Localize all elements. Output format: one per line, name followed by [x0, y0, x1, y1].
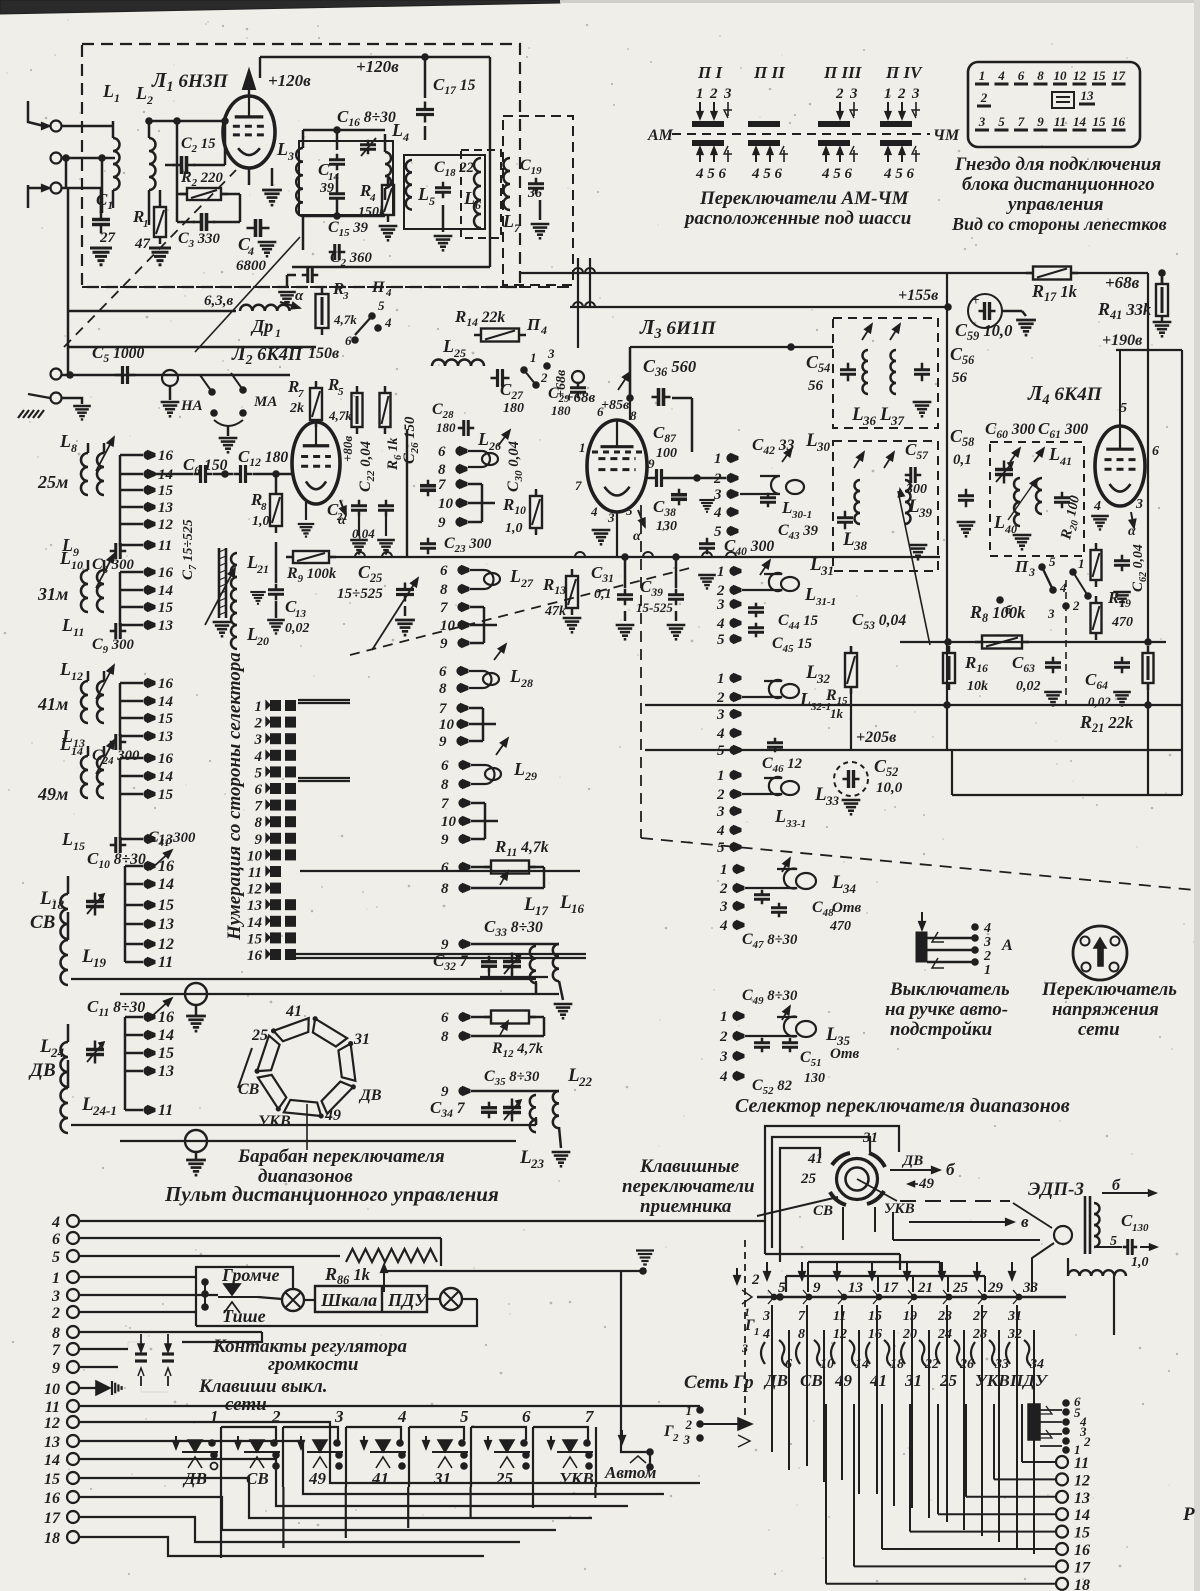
- svg-text:АМ: АМ: [647, 127, 674, 144]
- svg-text:4: 4: [385, 287, 392, 299]
- svg-text:Тише: Тише: [222, 1306, 266, 1326]
- svg-text:14: 14: [158, 583, 174, 599]
- svg-text:17: 17: [535, 903, 549, 918]
- svg-text:L: L: [59, 659, 71, 679]
- svg-text:11: 11: [45, 1399, 60, 1416]
- svg-text:2: 2: [685, 1417, 693, 1432]
- svg-text:13: 13: [158, 1063, 174, 1080]
- svg-text:+85в: +85в: [601, 398, 630, 413]
- svg-text:C16 8÷30: C16 8÷30: [337, 107, 396, 129]
- svg-text:3: 3: [1047, 606, 1055, 621]
- svg-text:300: 300: [905, 482, 927, 497]
- svg-text:4: 4: [402, 130, 409, 144]
- svg-text:4: 4: [716, 616, 725, 632]
- svg-text:1k: 1k: [830, 706, 844, 721]
- svg-text:3: 3: [723, 86, 732, 102]
- svg-text:49: 49: [324, 1107, 341, 1124]
- svg-text:Гнездо для подключения: Гнездо для подключения: [954, 154, 1161, 175]
- svg-text:7: 7: [514, 221, 521, 235]
- svg-text:6: 6: [439, 664, 447, 680]
- svg-text:10: 10: [247, 848, 263, 864]
- svg-text:5: 5: [998, 114, 1005, 129]
- svg-text:L: L: [509, 566, 521, 586]
- svg-text:L: L: [61, 829, 73, 849]
- svg-text:C36 560: C36 560: [643, 356, 696, 379]
- svg-text:180: 180: [436, 420, 456, 435]
- svg-text:15: 15: [158, 600, 174, 616]
- svg-text:ДВ: ДВ: [358, 1087, 382, 1104]
- svg-text:11: 11: [158, 954, 173, 971]
- svg-text:10: 10: [439, 717, 455, 733]
- svg-text:1: 1: [275, 326, 281, 340]
- svg-text:СВ: СВ: [30, 912, 55, 933]
- svg-text:13: 13: [158, 729, 174, 745]
- svg-text:УКВ: УКВ: [559, 1469, 594, 1488]
- svg-text:2: 2: [719, 1029, 728, 1045]
- svg-text:L: L: [825, 1024, 838, 1045]
- svg-text:41м: 41м: [37, 694, 68, 714]
- svg-text:9: 9: [52, 1360, 60, 1377]
- svg-text:16: 16: [158, 1009, 174, 1026]
- svg-text:1: 1: [210, 1407, 219, 1426]
- svg-text:УКВ: УКВ: [975, 1371, 1010, 1390]
- svg-text:15: 15: [158, 711, 174, 727]
- svg-text:8: 8: [441, 1029, 449, 1045]
- svg-text:25: 25: [453, 346, 466, 360]
- svg-text:3: 3: [911, 86, 920, 102]
- svg-text:8: 8: [261, 501, 267, 513]
- svg-text:2: 2: [716, 690, 725, 706]
- svg-text:C61 300: C61 300: [1038, 419, 1088, 441]
- svg-text:сети: сети: [1078, 1019, 1120, 1040]
- svg-text:А: А: [1001, 937, 1013, 954]
- svg-text:22: 22: [578, 1074, 593, 1089]
- svg-text:8: 8: [798, 1327, 805, 1342]
- svg-text:5: 5: [429, 194, 435, 208]
- svg-text:13: 13: [1081, 88, 1095, 103]
- svg-text:1: 1: [1078, 556, 1085, 571]
- svg-text:УКВ: УКВ: [258, 1113, 291, 1130]
- svg-text:1: 1: [143, 218, 149, 230]
- svg-text:16: 16: [1074, 1542, 1090, 1559]
- svg-text:6: 6: [441, 1010, 449, 1026]
- svg-text:переключатели: переключатели: [622, 1176, 755, 1197]
- svg-text:11: 11: [158, 538, 172, 554]
- svg-text:49: 49: [834, 1371, 853, 1390]
- svg-text:4: 4: [397, 1407, 407, 1426]
- svg-text:30-1: 30-1: [791, 509, 812, 521]
- svg-text:L: L: [831, 872, 844, 893]
- svg-text:L: L: [417, 184, 429, 204]
- svg-text:в: в: [1021, 1212, 1029, 1231]
- svg-text:1,0: 1,0: [505, 521, 523, 536]
- svg-text:6: 6: [1152, 444, 1159, 459]
- svg-text:13: 13: [158, 500, 174, 516]
- svg-text:9: 9: [813, 1280, 821, 1296]
- svg-text:4: 4: [716, 726, 725, 742]
- svg-text:1: 1: [530, 350, 537, 365]
- svg-text:150k: 150k: [358, 205, 386, 220]
- svg-text:10: 10: [1054, 68, 1068, 83]
- svg-text:5: 5: [1049, 554, 1056, 569]
- svg-text:32: 32: [1007, 1327, 1022, 1342]
- svg-text:12: 12: [158, 936, 174, 953]
- svg-text:C11 8÷30: C11 8÷30: [87, 997, 145, 1019]
- svg-text:5: 5: [338, 386, 344, 398]
- svg-text:15: 15: [44, 1471, 60, 1488]
- svg-text:7: 7: [441, 796, 449, 812]
- svg-text:6: 6: [52, 1231, 60, 1248]
- svg-text:4: 4: [719, 1069, 728, 1085]
- svg-text:Барабан переключателя: Барабан переключателя: [237, 1146, 445, 1167]
- svg-text:5: 5: [52, 1249, 60, 1266]
- svg-text:3: 3: [342, 290, 349, 302]
- svg-text:21: 21: [256, 562, 269, 576]
- svg-text:R11 4,7k: R11 4,7k: [494, 837, 549, 859]
- svg-text:33: 33: [1022, 1280, 1039, 1296]
- svg-text:6: 6: [475, 198, 481, 212]
- svg-text:5: 5: [460, 1407, 469, 1426]
- svg-text:L: L: [814, 784, 827, 805]
- svg-text:0,02: 0,02: [285, 621, 310, 636]
- svg-text:1: 1: [979, 68, 986, 83]
- svg-text:5: 5: [255, 765, 263, 781]
- svg-text:4 5 6: 4 5 6: [695, 166, 727, 182]
- svg-text:16: 16: [44, 1490, 60, 1507]
- svg-text:6: 6: [255, 782, 263, 798]
- svg-text:14: 14: [44, 1452, 60, 1469]
- svg-text:31: 31: [820, 563, 834, 578]
- svg-text:470: 470: [829, 919, 851, 934]
- svg-text:Л3 6И1П: Л3 6И1П: [639, 315, 717, 342]
- svg-text:C5 1000: C5 1000: [92, 343, 144, 365]
- svg-text:3: 3: [1028, 565, 1035, 579]
- svg-text:4: 4: [247, 244, 254, 258]
- svg-text:1: 1: [696, 86, 704, 102]
- svg-text:10: 10: [440, 618, 456, 634]
- svg-text:0,1: 0,1: [953, 452, 972, 468]
- svg-text:9: 9: [648, 456, 655, 471]
- svg-text:СВ: СВ: [813, 1203, 833, 1219]
- svg-text:3: 3: [1135, 497, 1143, 512]
- svg-text:+68в: +68в: [565, 390, 596, 406]
- svg-text:11: 11: [1054, 114, 1066, 129]
- svg-text:Отв: Отв: [830, 1046, 860, 1062]
- svg-text:13: 13: [158, 618, 174, 634]
- svg-text:б: б: [1005, 602, 1012, 617]
- svg-text:14: 14: [158, 1027, 174, 1044]
- svg-text:2k: 2k: [289, 401, 304, 416]
- svg-text:+155в: +155в: [898, 287, 938, 304]
- svg-text:13: 13: [44, 1434, 60, 1451]
- svg-text:СВ: СВ: [800, 1371, 823, 1390]
- svg-text:L: L: [781, 498, 792, 517]
- svg-text:Переключатель: Переключатель: [1041, 979, 1177, 1000]
- svg-text:ДВ: ДВ: [763, 1371, 788, 1390]
- svg-text:0,1: 0,1: [594, 587, 612, 602]
- svg-text:8: 8: [71, 441, 77, 455]
- svg-text:3: 3: [334, 1407, 344, 1426]
- svg-text:Л1 6Н3П: Л1 6Н3П: [151, 68, 229, 95]
- svg-text:3: 3: [254, 732, 263, 748]
- svg-text:9: 9: [73, 545, 79, 559]
- svg-text:L: L: [61, 615, 73, 635]
- svg-text:19: 19: [93, 955, 107, 970]
- svg-text:3: 3: [287, 149, 294, 163]
- svg-text:14: 14: [158, 694, 174, 710]
- svg-text:8: 8: [1037, 68, 1044, 83]
- svg-text:Переключатели АМ-ЧМ: Переключатели АМ-ЧМ: [699, 188, 910, 209]
- svg-text:L: L: [59, 548, 71, 568]
- svg-text:П: П: [371, 279, 385, 296]
- svg-text:C33 8÷30: C33 8÷30: [484, 917, 543, 939]
- svg-text:16: 16: [247, 948, 263, 964]
- svg-text:6,3,в: 6,3,в: [204, 293, 234, 309]
- svg-text:2: 2: [713, 471, 722, 487]
- svg-text:4: 4: [713, 505, 722, 521]
- svg-text:1: 1: [884, 86, 892, 102]
- svg-text:17: 17: [44, 1510, 61, 1527]
- svg-text:16: 16: [158, 448, 174, 464]
- svg-text:49м: 49м: [37, 784, 68, 804]
- svg-text:4: 4: [540, 323, 547, 337]
- svg-text:C10 8÷30: C10 8÷30: [87, 849, 146, 871]
- svg-text:2: 2: [146, 93, 153, 107]
- svg-text:11: 11: [1074, 1455, 1089, 1472]
- svg-text:10: 10: [71, 558, 83, 572]
- svg-text:9: 9: [255, 832, 263, 848]
- svg-text:L: L: [391, 120, 403, 140]
- svg-text:+205в: +205в: [856, 729, 896, 746]
- svg-text:C53 0,04: C53 0,04: [852, 610, 906, 632]
- svg-text:16: 16: [1112, 114, 1126, 129]
- svg-text:Сеть Гр: Сеть Гр: [684, 1372, 754, 1393]
- svg-text:L: L: [463, 188, 475, 208]
- svg-text:33-1: 33-1: [785, 818, 806, 830]
- svg-text:23: 23: [530, 1156, 545, 1171]
- svg-text:16: 16: [158, 565, 174, 581]
- svg-text:6: 6: [441, 860, 449, 876]
- svg-text:Л4 6К4П: Л4 6К4П: [1027, 381, 1103, 408]
- svg-text:29: 29: [987, 1280, 1004, 1296]
- svg-text:R21 22k: R21 22k: [1079, 712, 1134, 735]
- svg-text:17: 17: [1074, 1559, 1091, 1576]
- svg-text:31: 31: [433, 1469, 451, 1488]
- svg-text:25: 25: [251, 1027, 268, 1044]
- svg-text:15: 15: [1093, 114, 1107, 129]
- svg-text:б: б: [1112, 1177, 1121, 1194]
- svg-text:3: 3: [607, 510, 615, 525]
- svg-text:25: 25: [952, 1280, 969, 1296]
- svg-text:3: 3: [983, 935, 991, 950]
- svg-text:7: 7: [439, 701, 447, 717]
- svg-text:1: 1: [686, 1403, 693, 1418]
- svg-text:2: 2: [271, 1407, 281, 1426]
- svg-text:Пульт дистанционного управлени: Пульт дистанционного управления: [164, 1182, 499, 1206]
- svg-text:ДВ: ДВ: [901, 1153, 923, 1169]
- svg-text:1: 1: [717, 564, 725, 580]
- svg-text:9: 9: [438, 515, 446, 531]
- svg-text:6: 6: [438, 444, 446, 460]
- svg-text:L: L: [276, 139, 288, 159]
- svg-text:5: 5: [717, 840, 725, 856]
- svg-text:L: L: [842, 529, 855, 550]
- svg-text:12: 12: [247, 882, 263, 898]
- svg-text:4 5 6: 4 5 6: [883, 166, 915, 182]
- svg-text:1: 1: [720, 862, 728, 878]
- svg-text:25: 25: [495, 1469, 514, 1488]
- svg-text:на ручке авто-: на ручке авто-: [885, 999, 1008, 1020]
- svg-text:33: 33: [825, 793, 840, 808]
- svg-text:14: 14: [71, 744, 83, 758]
- svg-text:подстройки: подстройки: [890, 1019, 992, 1040]
- svg-text:Шкала: Шкала: [320, 1290, 377, 1310]
- svg-text:Отв: Отв: [832, 900, 862, 916]
- svg-text:5: 5: [717, 632, 725, 648]
- svg-text:31м: 31м: [37, 584, 68, 604]
- svg-text:13: 13: [848, 1280, 864, 1296]
- svg-text:НА: НА: [180, 398, 203, 414]
- svg-text:4: 4: [51, 1214, 60, 1231]
- svg-text:34: 34: [1029, 1357, 1044, 1372]
- svg-text:6: 6: [1018, 68, 1025, 83]
- svg-text:L: L: [39, 1036, 52, 1057]
- svg-text:α: α: [295, 288, 304, 304]
- svg-text:Селектор переключателя диапазо: Селектор переключателя диапазонов: [735, 1095, 1070, 1117]
- svg-text:L: L: [513, 759, 525, 779]
- svg-text:49: 49: [308, 1469, 327, 1488]
- svg-text:1: 1: [754, 1326, 760, 1338]
- svg-text:5: 5: [778, 1280, 786, 1296]
- svg-text:П: П: [1014, 557, 1029, 576]
- svg-text:14: 14: [1073, 114, 1087, 129]
- svg-text:5: 5: [378, 298, 385, 313]
- svg-text:25: 25: [939, 1371, 958, 1390]
- svg-text:+80в: +80в: [340, 436, 355, 462]
- svg-text:16: 16: [158, 751, 174, 767]
- svg-text:L: L: [805, 430, 818, 451]
- svg-text:2: 2: [719, 881, 728, 897]
- svg-text:3: 3: [719, 1049, 728, 1065]
- svg-text:41: 41: [371, 1469, 389, 1488]
- svg-text:8: 8: [441, 777, 449, 793]
- svg-text:4: 4: [997, 68, 1005, 83]
- svg-text:36: 36: [862, 413, 877, 428]
- svg-text:L: L: [809, 554, 822, 575]
- svg-text:130: 130: [1132, 1222, 1149, 1234]
- svg-text:П I: П I: [697, 63, 723, 82]
- svg-text:C60 300: C60 300: [985, 419, 1035, 441]
- svg-text:15÷525: 15÷525: [337, 586, 383, 602]
- svg-text:0,02: 0,02: [1016, 679, 1041, 694]
- svg-text:10,0: 10,0: [876, 780, 903, 796]
- svg-text:3: 3: [978, 114, 986, 129]
- svg-text:11: 11: [158, 1102, 173, 1119]
- svg-text:36: 36: [527, 186, 542, 201]
- svg-text:56: 56: [808, 378, 824, 394]
- svg-text:100: 100: [656, 446, 677, 461]
- svg-text:6800: 6800: [236, 258, 267, 274]
- svg-text:2: 2: [672, 1432, 679, 1444]
- svg-text:2: 2: [254, 716, 263, 732]
- svg-text:8: 8: [440, 582, 448, 598]
- svg-text:39: 39: [918, 505, 933, 520]
- svg-text:4,7k: 4,7k: [333, 312, 357, 327]
- svg-text:3: 3: [716, 597, 725, 613]
- svg-text:18: 18: [1074, 1577, 1090, 1591]
- svg-text:L: L: [774, 806, 786, 826]
- svg-text:7: 7: [298, 388, 304, 400]
- svg-text:32-1: 32-1: [810, 701, 831, 713]
- svg-text:28: 28: [972, 1327, 987, 1342]
- svg-text:R8 100k: R8 100k: [969, 602, 1026, 625]
- svg-text:6: 6: [440, 563, 448, 579]
- svg-text:41: 41: [1059, 454, 1072, 468]
- svg-text:L: L: [81, 946, 94, 967]
- svg-text:27: 27: [520, 576, 534, 590]
- svg-text:П II: П II: [753, 63, 786, 82]
- svg-text:20: 20: [256, 634, 269, 648]
- svg-text:1: 1: [717, 768, 725, 784]
- svg-text:11: 11: [248, 865, 262, 881]
- svg-text:1: 1: [984, 963, 991, 978]
- svg-text:11: 11: [833, 1309, 846, 1324]
- svg-text:180: 180: [503, 401, 524, 416]
- svg-text:L: L: [519, 1147, 532, 1168]
- svg-text:37: 37: [890, 413, 905, 428]
- svg-text:47: 47: [134, 236, 151, 252]
- svg-text:6: 6: [522, 1407, 531, 1426]
- svg-text:2: 2: [540, 370, 548, 385]
- svg-text:4: 4: [254, 749, 263, 765]
- svg-text:25м: 25м: [37, 472, 68, 492]
- svg-text:15: 15: [247, 931, 263, 947]
- svg-text:15: 15: [868, 1309, 882, 1324]
- svg-text:расположенные под шасси: расположенные под шасси: [683, 208, 911, 229]
- svg-text:2: 2: [716, 787, 725, 803]
- svg-text:блока дистанционного: блока дистанционного: [962, 174, 1155, 195]
- svg-text:L: L: [39, 888, 52, 909]
- svg-text:R41 33k: R41 33k: [1097, 299, 1152, 322]
- svg-text:24: 24: [937, 1327, 952, 1342]
- svg-text:L: L: [851, 404, 864, 425]
- svg-text:3: 3: [51, 1288, 60, 1305]
- svg-text:0,02: 0,02: [1088, 694, 1111, 709]
- svg-text:38: 38: [853, 538, 868, 553]
- svg-text:31-1: 31-1: [815, 596, 836, 608]
- svg-text:4 5 6: 4 5 6: [821, 166, 853, 182]
- svg-text:12: 12: [158, 517, 174, 533]
- svg-text:+: +: [972, 292, 979, 307]
- svg-text:громкости: громкости: [268, 1354, 359, 1375]
- svg-text:L: L: [993, 512, 1005, 532]
- svg-text:L: L: [804, 584, 816, 604]
- svg-text:1: 1: [717, 671, 725, 687]
- svg-text:1: 1: [714, 451, 722, 467]
- svg-text:31: 31: [1007, 1309, 1022, 1324]
- svg-text:5: 5: [1120, 401, 1127, 416]
- svg-text:24-1: 24-1: [92, 1103, 117, 1118]
- svg-text:+190в: +190в: [1102, 332, 1142, 349]
- svg-text:25: 25: [800, 1171, 817, 1187]
- svg-text:L: L: [523, 894, 536, 915]
- svg-text:14: 14: [247, 915, 263, 931]
- svg-text:5: 5: [626, 503, 633, 518]
- svg-text:12: 12: [1073, 68, 1087, 83]
- svg-text:28: 28: [520, 676, 533, 690]
- svg-text:L: L: [559, 892, 572, 913]
- svg-text:30: 30: [816, 439, 831, 454]
